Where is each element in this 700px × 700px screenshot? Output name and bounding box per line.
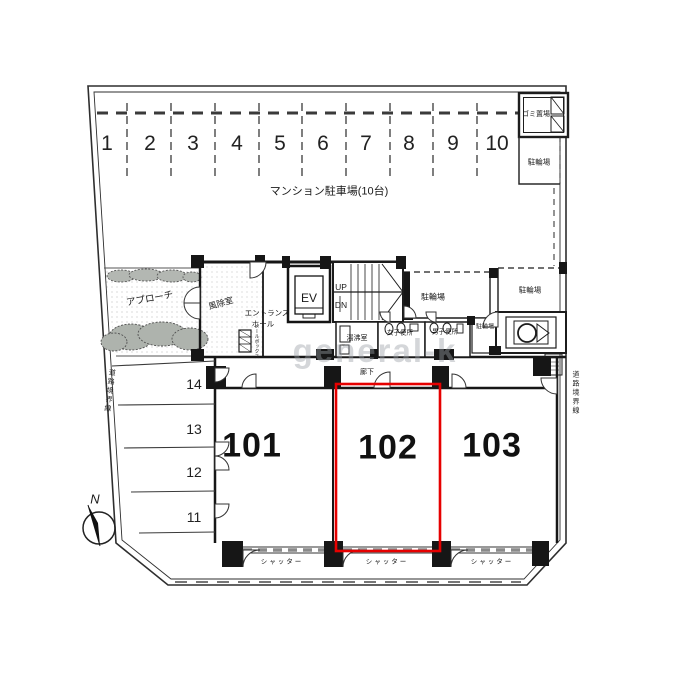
corridor-label: 廊下 (360, 369, 374, 377)
north-label: N (90, 493, 99, 508)
bicycle-parking-label-topright: 駐輪場 (528, 159, 551, 168)
unit-102-label: 102 (358, 428, 418, 467)
stairs-down-label: DN (335, 301, 347, 311)
bike-parking-topright (519, 137, 560, 266)
north-compass (83, 505, 115, 546)
parking-space-7: 7 (360, 132, 372, 156)
side-space-12: 12 (186, 464, 202, 480)
entrance-hall-label-line1: エントランス (245, 310, 290, 319)
unit-101-label: 101 (222, 426, 282, 465)
unit-103-label: 103 (462, 426, 522, 465)
mailbox-label: メールボックス (254, 324, 261, 359)
floorplan: 1 2 3 4 5 6 7 8 9 10 マンション駐車場(10台) ゴミ置場 … (0, 0, 700, 700)
parking-space-9: 9 (447, 132, 459, 156)
parking-area-label: マンション駐車場(10台) (270, 186, 389, 199)
elevator-label: EV (301, 292, 317, 306)
parking-space-4: 4 (231, 132, 243, 156)
garbage-area-label: ゴミ置場 (522, 111, 550, 119)
bike-parking-mid (404, 272, 490, 318)
stairs-up-label: UP (335, 283, 347, 293)
mailbox-unit (239, 330, 251, 352)
shutter-label-101: シャッター (261, 558, 304, 565)
equipment-room (496, 312, 566, 375)
road-boundary-label-right: 道路境界線 (570, 371, 580, 416)
parking-space-1: 1 (101, 132, 113, 156)
bicycle-parking-label-mid: 駐輪場 (421, 292, 445, 301)
parking-space-10: 10 (485, 132, 508, 156)
parking-space-6: 6 (317, 132, 329, 156)
bicycle-parking-label-right: 駐輪場 (519, 287, 542, 296)
bicycle-parking-label-small: 駐輪場 (476, 325, 494, 332)
side-space-14: 14 (186, 376, 202, 392)
parking-space-3: 3 (187, 132, 199, 156)
parking-space-8: 8 (403, 132, 415, 156)
parking-space-5: 5 (274, 132, 286, 156)
shutter-label-103: シャッター (471, 558, 514, 565)
side-space-13: 13 (186, 421, 202, 437)
shutter-label-102: シャッター (366, 558, 409, 565)
watermark: general-k (293, 332, 458, 370)
side-space-11: 11 (187, 509, 202, 525)
parking-space-2: 2 (144, 132, 156, 156)
